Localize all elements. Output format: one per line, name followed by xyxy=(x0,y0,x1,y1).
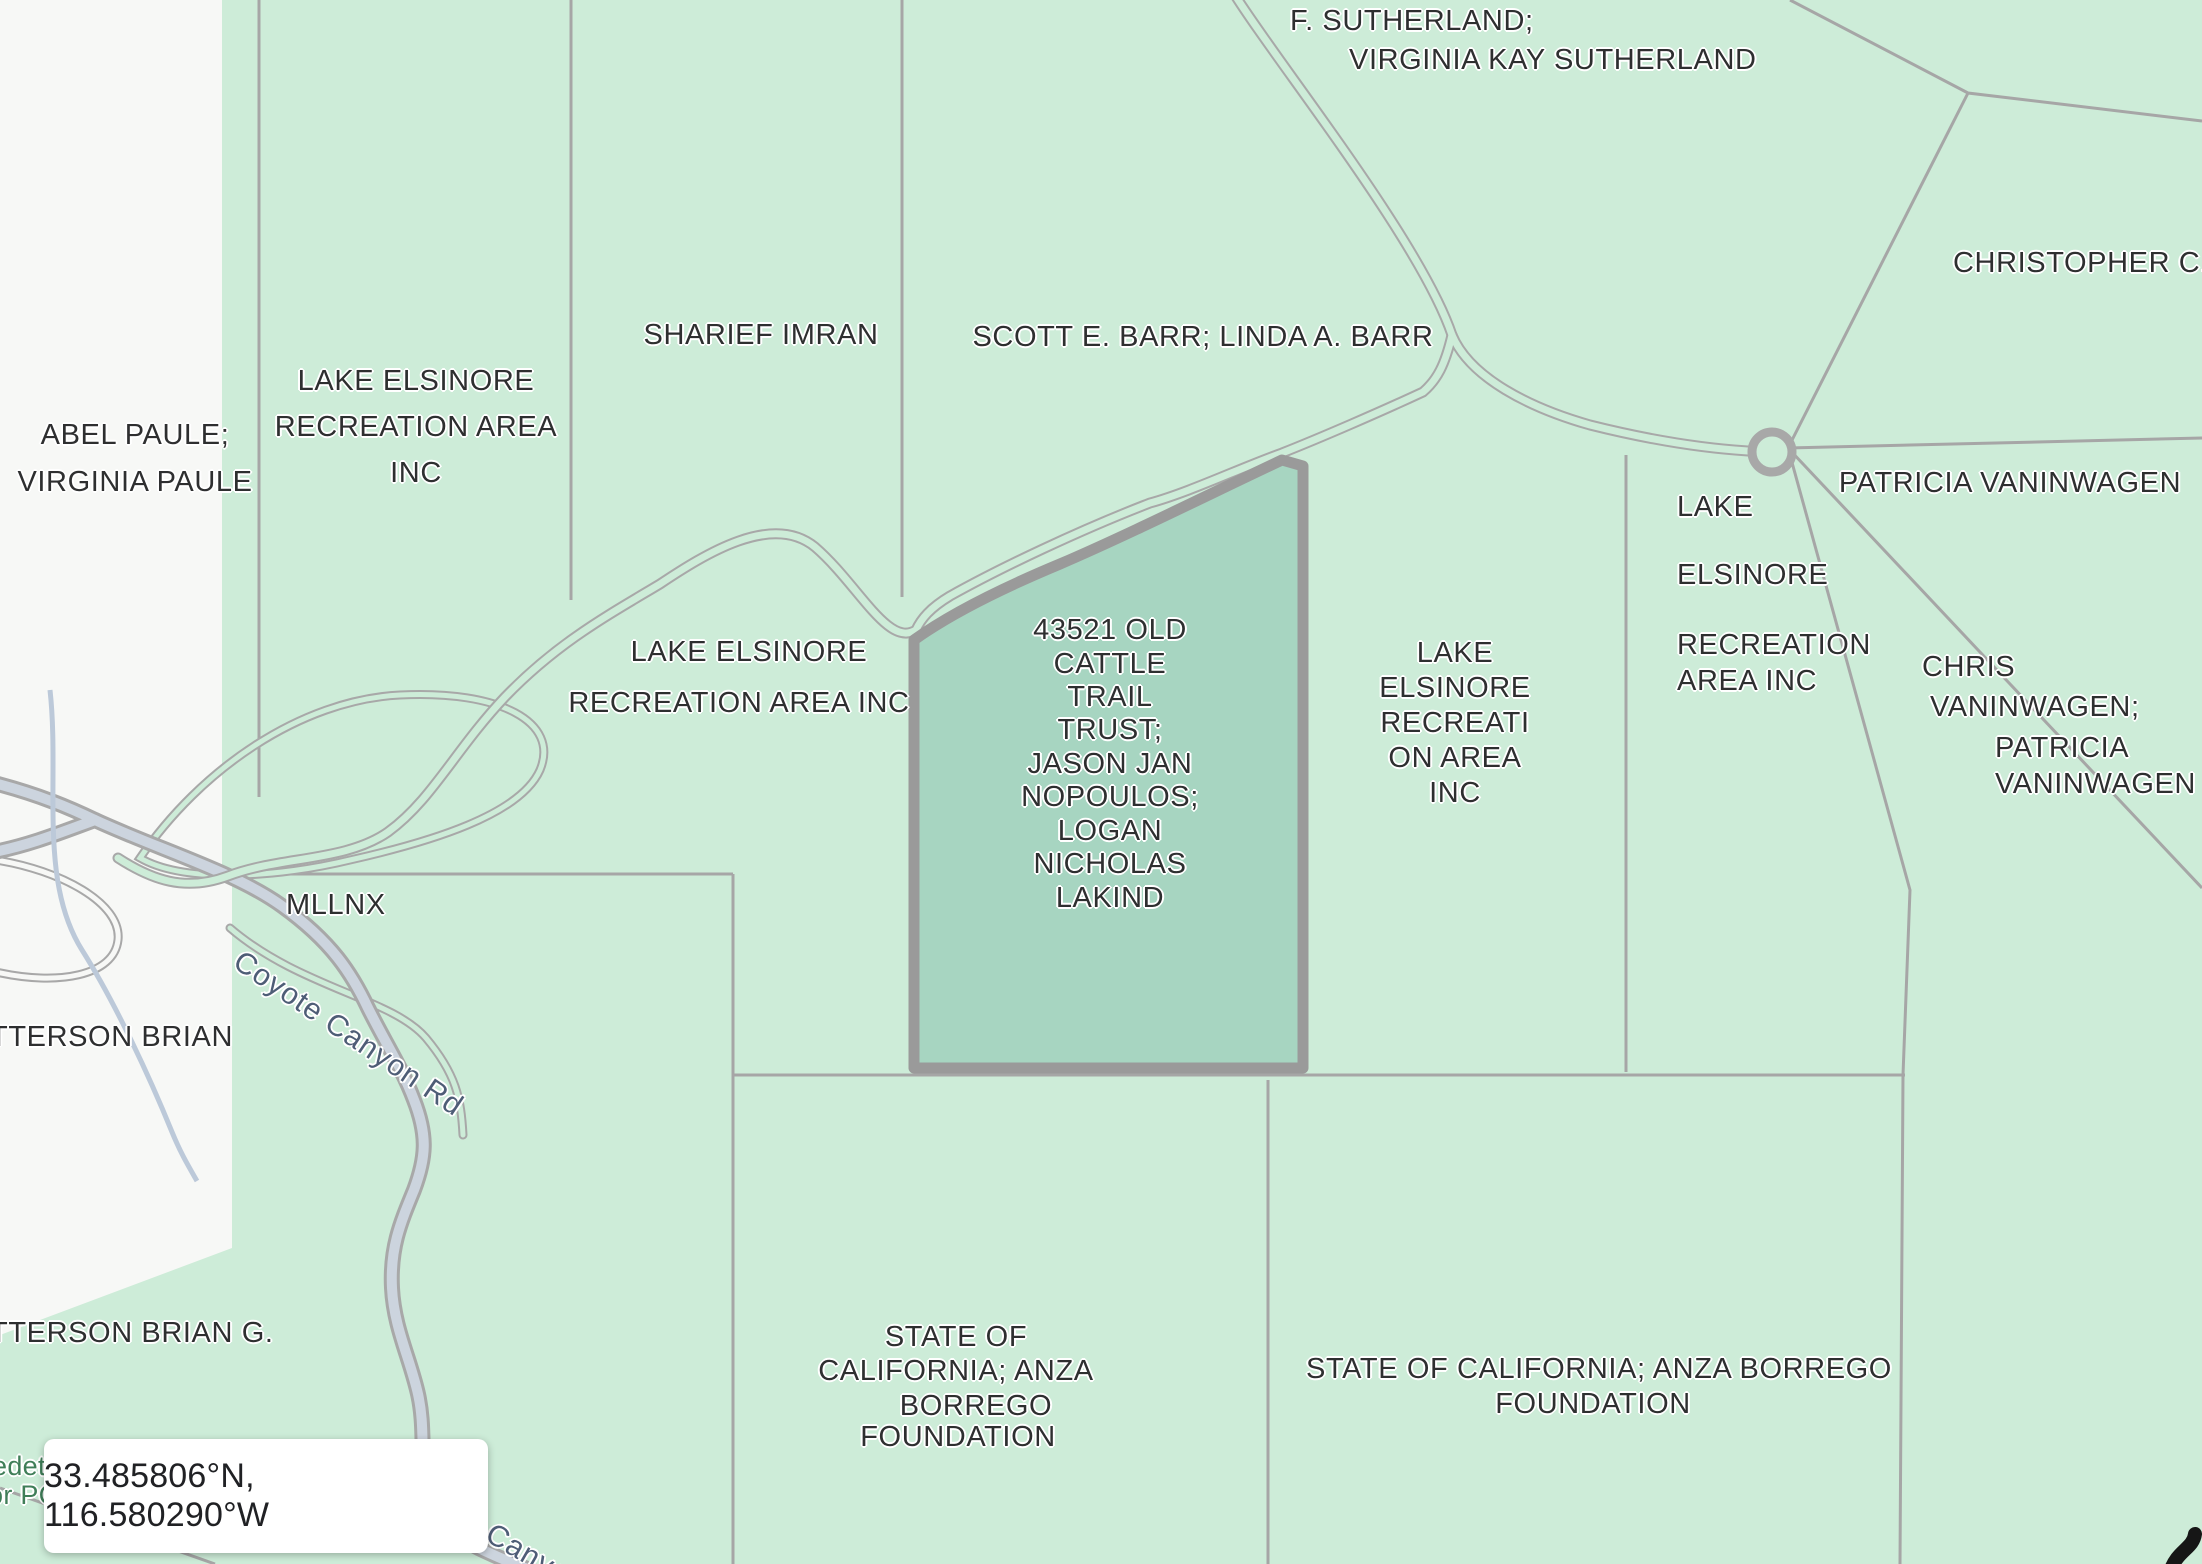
coordinates-text: 33.485806°N, 116.580290°W xyxy=(44,1457,488,1535)
parcel-label-chris-vaninwagen-4: VANINWAGEN xyxy=(1995,769,2196,800)
parcel-label-lera-e-3: RECREATION xyxy=(1677,630,1871,661)
parcel-label-lera-mid-5: INC xyxy=(1429,778,1481,809)
parcel-label-state-ca-w-1: STATE OF xyxy=(885,1322,1027,1353)
parcel-label-lera-w-1: LAKE ELSINORE xyxy=(631,637,868,668)
selected-parcel-label-3: TRAIL xyxy=(1067,682,1152,713)
parcel-label-lera-e-4: AREA INC xyxy=(1677,666,1817,697)
parcel-label-state-ca-e-2: FOUNDATION xyxy=(1495,1389,1691,1420)
parcel-label-state-ca-e-1: STATE OF CALIFORNIA; ANZA BORREGO xyxy=(1306,1354,1892,1385)
parcel-label-abel-paule-1: ABEL PAULE; xyxy=(41,420,230,451)
parcel-label-sutherland-1: F. SUTHERLAND; xyxy=(1290,6,1534,37)
parcel-label-lera-e-2: ELSINORE xyxy=(1677,560,1828,591)
parcel-label-sharief-imran: SHARIEF IMRAN xyxy=(644,320,879,351)
parcel-label-lera-mid-4: ON AREA xyxy=(1388,743,1521,774)
selected-parcel-label-7: LOGAN xyxy=(1058,816,1163,847)
selected-parcel-label-9: LAKIND xyxy=(1056,883,1164,914)
parcel-label-lera-mid-2: ELSINORE xyxy=(1379,673,1530,704)
coordinates-chip: 33.485806°N, 116.580290°W xyxy=(44,1439,488,1553)
parcel-label-lera-w-2: RECREATION AREA INC xyxy=(568,688,909,719)
parcel-label-lera-e-1: LAKE xyxy=(1677,492,1754,523)
parcel-map[interactable]: F. SUTHERLAND;VIRGINIA KAY SUTHERLANDCHR… xyxy=(0,0,2202,1564)
parcel-label-mllnx: MLLNX xyxy=(286,890,386,921)
selected-parcel-label-4: TRUST; xyxy=(1057,715,1162,746)
parcel-label-lera-nw-1: LAKE ELSINORE xyxy=(298,366,535,397)
selected-parcel-label-6: NOPOULOS; xyxy=(1021,782,1199,813)
parcel-label-lera-nw-2: RECREATION AREA xyxy=(275,412,557,443)
parcel-label-chris-vaninwagen-2: VANINWAGEN; xyxy=(1930,692,2140,723)
parcel-label-scott-barr: SCOTT E. BARR; LINDA A. BARR xyxy=(972,322,1433,353)
unmapped-area xyxy=(0,0,232,1335)
parcel-label-chris-vaninwagen-3: PATRICIA xyxy=(1995,733,2129,764)
parcel-label-patricia-vaninwagen: PATRICIA VANINWAGEN xyxy=(1839,468,2181,499)
parcel-label-abel-paule-2: VIRGINIA PAULE xyxy=(17,467,252,498)
selected-parcel-label-5: JASON JAN xyxy=(1028,749,1193,780)
cul-de-sac-bulb xyxy=(1752,432,1792,472)
selected-parcel-label-8: NICHOLAS xyxy=(1033,849,1186,880)
selected-parcel-label-1: 43521 OLD xyxy=(1033,615,1187,646)
green-area-label-1: edet xyxy=(0,1452,46,1481)
selected-parcel-label-2: CATTLE xyxy=(1054,649,1167,680)
parcel-label-state-ca-w-3: BORREGO xyxy=(900,1391,1052,1422)
parcel-label-lera-mid-3: RECREATI xyxy=(1380,708,1529,739)
parcel-label-chris-vaninwagen-1: CHRIS xyxy=(1922,652,2015,683)
parcel-label-sutherland-2: VIRGINIA KAY SUTHERLAND xyxy=(1349,45,1757,76)
parcel-label-tterson-brian: TTERSON BRIAN xyxy=(0,1022,233,1053)
parcel-label-lera-mid-1: LAKE xyxy=(1417,638,1494,669)
parcel-label-lera-nw-3: INC xyxy=(390,458,442,489)
parcel-label-christopher: CHRISTOPHER C. xyxy=(1953,248,2202,279)
parcel-label-state-ca-w-2: CALIFORNIA; ANZA xyxy=(818,1356,1094,1387)
parcel-label-state-ca-w-4: FOUNDATION xyxy=(860,1422,1056,1453)
parcel-label-tterson-brian-g: TTERSON BRIAN G. xyxy=(0,1318,274,1349)
